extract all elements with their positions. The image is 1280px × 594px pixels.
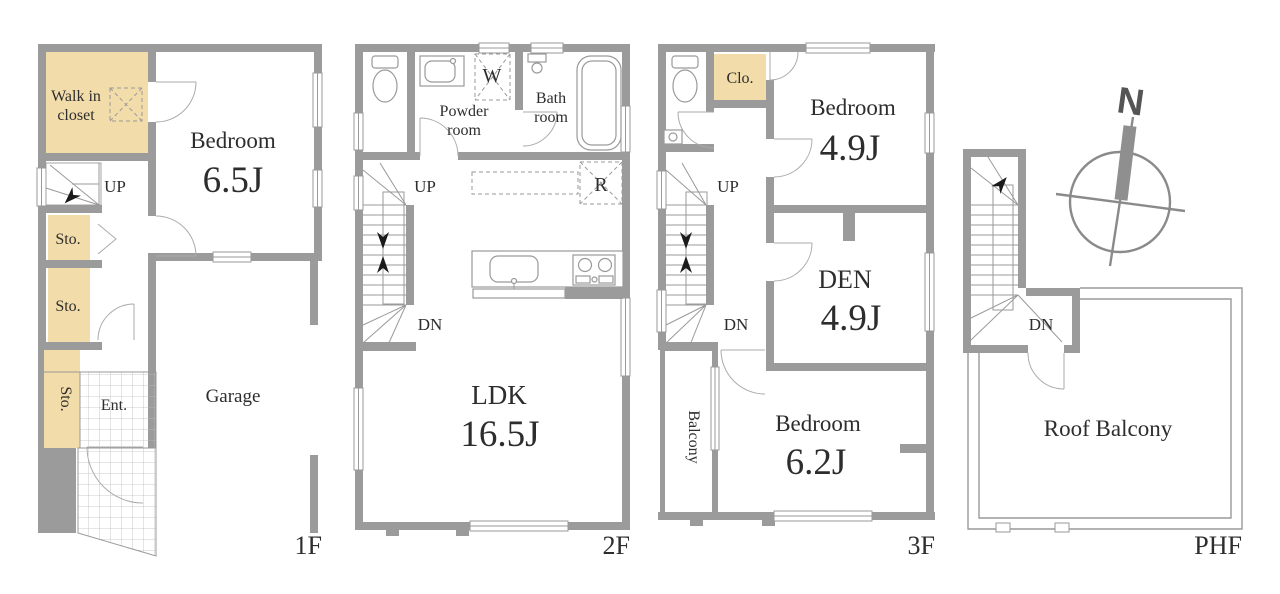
entrance-approach [78,448,156,556]
washer-label: W [483,65,502,87]
bedroom-size-1f: 6.5J [203,160,264,201]
dn-label-2f: DN [418,315,443,334]
ldk-label: LDK [471,380,527,410]
bedroom2-label-3f: Bedroom [775,411,861,436]
compass-icon: N [1056,79,1185,266]
kitchen-counter [472,251,623,299]
den-label: DEN [818,265,872,294]
powder-sink-symbol [420,56,464,86]
doors-phf [1028,353,1064,389]
north-label: N [1115,79,1147,123]
garage-label: Garage [206,386,261,407]
toilet-symbol-2f [372,56,398,102]
labels-3f: Clo. Bedroom 4.9J UP DN DEN 4.9J Balcony… [685,70,935,560]
stair-direction-arrow-phf [991,173,1011,194]
den-size-label: 4.9J [821,298,882,339]
floor-plan-1f: Walk in closet Bedroom 6.5J UP Sto. Sto.… [37,44,322,560]
parapet-drain-1 [996,523,1010,532]
powder-room-label-line2: room [447,122,481,139]
floor-plan-2f: Powder room W Bath room UP DN R LDK 16.5… [354,43,630,560]
dn-label-phf: DN [1029,315,1054,334]
closet-label-3f: Clo. [726,70,753,87]
floor-plan-3f: Clo. Bedroom 4.9J UP DN DEN 4.9J Balcony… [657,43,935,560]
dn-label-3f: DN [724,315,749,334]
up-label-3f: UP [717,177,739,196]
bedroom-label-1f: Bedroom [190,128,276,153]
ldk-size-label: 16.5J [460,414,539,455]
stairs-2f [363,163,406,345]
bath-room-label-line1: Bath [536,90,566,107]
walls-phf [963,149,1080,353]
bath-room-label-line2: room [534,109,568,126]
up-label-1f: UP [104,177,126,196]
floor-label-3f: 3F [908,531,935,560]
floor-plan-phf: N DN Roof Balcony PHF [963,79,1242,560]
balcony-label-3f: Balcony [685,410,702,463]
roof-balcony-label: Roof Balcony [1044,416,1173,441]
powder-room-label-line1: Powder [440,103,490,120]
fridge-label: R [594,174,608,196]
stairs-1f [46,163,101,208]
stove-symbol [573,255,615,285]
floor-label-1f: 1F [295,531,322,560]
toilet-symbol-3f [664,56,698,144]
storage2-label: Sto. [55,298,80,315]
walk-in-closet-label-line1: Walk in [51,88,101,105]
stairs-3f [666,163,707,345]
bedroom1-size-3f: 4.9J [820,128,881,169]
bedroom2-size-3f: 6.2J [786,442,847,483]
north-needle [1121,126,1130,200]
storage3-label: Sto. [57,386,74,411]
up-label-2f: UP [414,177,436,196]
floor-label-phf: PHF [1194,531,1242,560]
roof-balcony-parapet [968,288,1242,532]
cupboard-dashed-outline [472,172,578,194]
floor-plan-drawing: Walk in closet Bedroom 6.5J UP Sto. Sto.… [0,0,1280,594]
floor-label-2f: 2F [603,531,630,560]
walk-in-closet-label-line2: closet [57,107,95,124]
entrance-label: Ent. [101,397,127,414]
floor-plan-canvas: Walk in closet Bedroom 6.5J UP Sto. Sto.… [0,0,1280,594]
storage1-label: Sto. [55,231,80,248]
bedroom1-label-3f: Bedroom [810,95,896,120]
parapet-drain-2 [1055,523,1069,532]
